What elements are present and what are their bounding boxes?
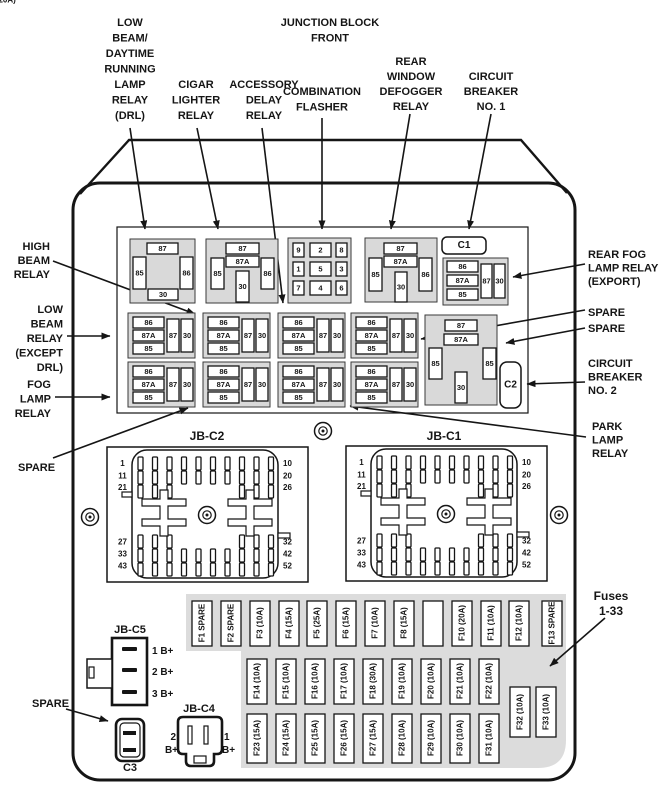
fuse-f2: F2 SPARE xyxy=(221,601,241,646)
svg-text:85: 85 xyxy=(135,269,143,278)
fuse-row-3: F23 (15A) F24 (15A) F25 (15A) F26 (15A) … xyxy=(247,714,499,763)
screw-icon xyxy=(315,423,332,440)
svg-text:LAMP: LAMP xyxy=(592,435,623,447)
svg-text:HIGH: HIGH xyxy=(23,241,51,253)
svg-text:RELAY: RELAY xyxy=(27,333,64,345)
svg-text:(EXPORT): (EXPORT) xyxy=(588,276,641,288)
fuse-f19: F19 (10A) xyxy=(392,659,412,704)
label-low-beam-relay: LOW BEAM RELAY (EXCEPT DRL) xyxy=(15,304,63,374)
fuse-f25: F25 (15A) xyxy=(305,714,325,763)
svg-text:F25 (15A): F25 (15A) xyxy=(311,720,320,756)
svg-text:F7 (10A): F7 (10A) xyxy=(371,607,380,639)
fuse-f32: F32 (10A) xyxy=(510,687,530,737)
screw-icon xyxy=(551,507,568,524)
svg-text:86: 86 xyxy=(182,269,190,278)
svg-text:87: 87 xyxy=(396,244,404,253)
svg-text:F28 (10A): F28 (10A) xyxy=(398,720,407,756)
svg-text:3: 3 xyxy=(339,265,343,274)
svg-text:86: 86 xyxy=(263,269,271,278)
svg-text:BEAM: BEAM xyxy=(18,255,50,267)
svg-text:1: 1 xyxy=(296,265,300,274)
svg-text:LAMP RELAY: LAMP RELAY xyxy=(588,263,659,275)
svg-text:F12 (10A): F12 (10A) xyxy=(515,605,524,641)
fuse-f18: F18 (30A) xyxy=(363,659,383,704)
svg-text:F23 (15A): F23 (15A) xyxy=(253,720,262,756)
svg-text:8: 8 xyxy=(339,246,343,255)
svg-text:F24 (15A): F24 (15A) xyxy=(282,720,291,756)
svg-text:F3 (10A): F3 (10A) xyxy=(256,607,265,639)
label-rear-fog-lamp-relay: REAR FOG LAMP RELAY (EXPORT) xyxy=(588,249,659,288)
fuse-f28: F28 (10A) xyxy=(392,714,412,763)
svg-text:BEAM: BEAM xyxy=(31,319,63,331)
label-jbc1: JB-C1 xyxy=(427,429,462,443)
svg-text:C1: C1 xyxy=(458,240,471,251)
fuse-f17: F17 (10A) xyxy=(334,659,354,704)
svg-text:F13 SPARE: F13 SPARE xyxy=(548,601,557,645)
fuse-f5: F5 (25A) xyxy=(307,601,327,646)
svg-text:FRONT: FRONT xyxy=(311,33,349,45)
mini-relay-high-beam xyxy=(203,313,270,358)
svg-text:C3: C3 xyxy=(123,762,137,774)
svg-text:DEFOGGER: DEFOGGER xyxy=(380,86,443,98)
connector-c2: C2 xyxy=(500,362,521,408)
fuse-f10: F10 (20A) xyxy=(452,601,472,646)
svg-text:87: 87 xyxy=(238,244,246,253)
label-jbc2: JB-C2 xyxy=(190,429,225,443)
label-cigar-lighter-relay: CIGAR LIGHTER RELAY xyxy=(172,79,220,122)
svg-text:9: 9 xyxy=(296,246,300,255)
svg-text:NO. 1: NO. 1 xyxy=(477,101,506,113)
svg-text:C2: C2 xyxy=(504,380,517,391)
svg-text:FLASHER: FLASHER xyxy=(296,102,348,114)
mini-relay-spare-a xyxy=(351,313,418,358)
relay-rear-fog-export: 86 87A 85 87 30 xyxy=(443,258,508,305)
fuse-f30: F30 (10A) xyxy=(450,714,470,763)
label-rear-window-defogger-relay: REAR WINDOW DEFOGGER RELAY xyxy=(380,56,443,113)
fuse-f6: F6 (15A) xyxy=(336,601,356,646)
fuse-f16: F16 (10A) xyxy=(305,659,325,704)
fuse-f26: F26 (15A) xyxy=(334,714,354,763)
combination-flasher-block: 9 2 8 1 5 3 7 4 6 xyxy=(288,238,351,303)
svg-text:COMBINATION: COMBINATION xyxy=(283,86,361,98)
svg-text:30: 30 xyxy=(457,383,465,392)
fuse-f7: F7 (10A) xyxy=(365,601,385,646)
fuse-f20: F20 (10A) xyxy=(421,659,441,704)
label-fuses-1-33: Fuses 1-33 xyxy=(594,589,629,618)
svg-text:7: 7 xyxy=(296,284,300,293)
svg-text:(DRL): (DRL) xyxy=(115,110,145,122)
mini-relay-park-lamp xyxy=(351,362,418,407)
label-park-lamp-relay: PARK LAMP RELAY xyxy=(592,421,629,460)
svg-text:BEAM/: BEAM/ xyxy=(112,33,147,45)
svg-text:BREAKER: BREAKER xyxy=(464,86,518,98)
svg-text:F29 (10A): F29 (10A) xyxy=(427,720,436,756)
fuse-f15: F15 (10A) xyxy=(276,659,296,704)
svg-text:2: 2 xyxy=(318,246,322,255)
connector-jbc1 xyxy=(346,446,547,581)
svg-text:85: 85 xyxy=(431,359,439,368)
svg-text:87A: 87A xyxy=(454,335,468,344)
svg-text:RELAY: RELAY xyxy=(112,95,149,107)
svg-text:DAYTIME: DAYTIME xyxy=(106,48,155,60)
label-drl-relay: LOW BEAM/ DAYTIME RUNNING LAMP RELAY (DR… xyxy=(104,17,155,122)
svg-text:F9 (20A): F9 (20A) xyxy=(0,0,16,5)
svg-text:6: 6 xyxy=(339,284,343,293)
screw-icon xyxy=(82,509,99,526)
fuse-f24: F24 (15A) xyxy=(276,714,296,763)
svg-text:F18 (30A): F18 (30A) xyxy=(369,663,378,699)
svg-text:2: 2 xyxy=(170,732,176,743)
svg-text:REAR FOG: REAR FOG xyxy=(588,249,646,261)
fuse-f23: F23 (15A) xyxy=(247,714,267,763)
mini-relay-fog-lamp xyxy=(128,362,195,407)
label-combination-flasher: COMBINATION FLASHER xyxy=(283,86,361,114)
label-spare-left: SPARE xyxy=(18,462,55,474)
fuse-f3: F3 (10A) xyxy=(250,601,270,646)
svg-text:F33 (10A): F33 (10A) xyxy=(542,694,551,730)
svg-text:LAMP: LAMP xyxy=(114,79,145,91)
svg-text:JUNCTION BLOCK: JUNCTION BLOCK xyxy=(281,17,379,29)
svg-text:CIGAR: CIGAR xyxy=(178,79,214,91)
svg-text:FOG: FOG xyxy=(27,379,51,391)
relay-cigar-lighter: 87 87A 85 86 30 xyxy=(206,239,278,303)
svg-text:F30 (10A): F30 (10A) xyxy=(456,720,465,756)
svg-text:86: 86 xyxy=(458,262,466,271)
svg-text:CIRCUIT: CIRCUIT xyxy=(469,71,514,83)
svg-text:F5 (25A): F5 (25A) xyxy=(313,607,322,639)
svg-text:30: 30 xyxy=(238,282,246,291)
fuse-f1: F1 SPARE xyxy=(192,601,212,646)
svg-text:F21 (10A): F21 (10A) xyxy=(456,663,465,699)
fuse-f31: F31 (10A) xyxy=(479,714,499,763)
svg-text:30: 30 xyxy=(495,277,503,286)
connector-jbc2 xyxy=(107,447,308,582)
svg-text:3 B+: 3 B+ xyxy=(152,689,174,700)
relay-spare-large: 87 87A 85 85 30 xyxy=(425,315,497,405)
label-spare-right-1: SPARE xyxy=(588,307,625,319)
fuse-f29: F29 (10A) xyxy=(421,714,441,763)
label-junction-block-front: JUNCTION BLOCK FRONT xyxy=(281,17,379,45)
svg-text:87: 87 xyxy=(457,321,465,330)
svg-text:F16 (10A): F16 (10A) xyxy=(311,663,320,699)
svg-text:30: 30 xyxy=(397,283,405,292)
svg-text:RELAY: RELAY xyxy=(393,101,430,113)
svg-text:85: 85 xyxy=(371,270,379,279)
svg-text:RELAY: RELAY xyxy=(246,110,283,122)
svg-text:B+: B+ xyxy=(165,745,178,756)
svg-text:85: 85 xyxy=(213,269,221,278)
svg-text:87A: 87A xyxy=(394,257,408,266)
svg-text:1-33: 1-33 xyxy=(599,604,623,618)
mini-relay-low-beam xyxy=(128,313,195,358)
mini-relay-accessory-delay xyxy=(278,313,345,358)
label-high-beam-relay: HIGH BEAM RELAY xyxy=(14,241,51,281)
svg-text:PARK: PARK xyxy=(592,421,622,433)
svg-text:F8 (15A): F8 (15A) xyxy=(400,607,409,639)
connector-c1: C1 xyxy=(442,237,486,254)
svg-text:LIGHTER: LIGHTER xyxy=(172,95,220,107)
svg-text:85: 85 xyxy=(458,290,466,299)
svg-text:F22 (10A): F22 (10A) xyxy=(485,663,494,699)
fuse-f4: F4 (15A) xyxy=(279,601,299,646)
label-spare-right-2: SPARE xyxy=(588,323,625,335)
fuse-f12: F12 (10A) xyxy=(509,601,529,646)
svg-text:JB-C4: JB-C4 xyxy=(183,703,216,715)
label-spare-bottom: SPARE xyxy=(32,698,69,710)
mini-relay-spare-b xyxy=(203,362,270,407)
svg-text:2 B+: 2 B+ xyxy=(152,667,174,678)
fuse-f13: F13 SPARE xyxy=(542,601,562,646)
fuse-f14: F14 (10A) xyxy=(247,659,267,704)
svg-text:LOW: LOW xyxy=(37,304,63,316)
svg-text:BREAKER: BREAKER xyxy=(588,372,642,384)
fuse-f21: F21 (10A) xyxy=(450,659,470,704)
svg-text:F17 (10A): F17 (10A) xyxy=(340,663,349,699)
svg-text:F6 (15A): F6 (15A) xyxy=(342,607,351,639)
svg-text:RELAY: RELAY xyxy=(14,269,51,281)
label-circuit-breaker-2: CIRCUIT BREAKER NO. 2 xyxy=(588,358,642,397)
svg-text:DELAY: DELAY xyxy=(246,95,283,107)
svg-text:87A: 87A xyxy=(456,276,470,285)
svg-text:86: 86 xyxy=(421,270,429,279)
svg-text:DRL): DRL) xyxy=(37,362,64,374)
svg-text:F32 (10A): F32 (10A) xyxy=(516,694,525,730)
svg-text:87: 87 xyxy=(482,277,490,286)
svg-text:B+: B+ xyxy=(222,745,235,756)
svg-text:Fuses: Fuses xyxy=(594,589,629,603)
svg-text:CIRCUIT: CIRCUIT xyxy=(588,358,633,370)
label-circuit-breaker-1: CIRCUIT BREAKER NO. 1 xyxy=(464,71,518,113)
svg-text:5: 5 xyxy=(318,265,322,274)
svg-text:RELAY: RELAY xyxy=(592,448,629,460)
svg-text:RELAY: RELAY xyxy=(178,110,215,122)
mini-relay xyxy=(278,362,345,407)
svg-text:87A: 87A xyxy=(236,257,250,266)
svg-text:1 B+: 1 B+ xyxy=(152,646,174,657)
svg-text:F4 (15A): F4 (15A) xyxy=(285,607,294,639)
svg-text:NO. 2: NO. 2 xyxy=(588,385,617,397)
fuse-box-diagram-page: 86 87A 85 87 30 1 11 21 27 33 43 xyxy=(0,0,659,792)
relay-drl: 87 85 86 30 xyxy=(130,239,195,303)
svg-text:F19 (10A): F19 (10A) xyxy=(398,663,407,699)
relay-rear-defogger: 87 87A 85 86 30 xyxy=(365,238,437,302)
svg-text:F1 SPARE: F1 SPARE xyxy=(198,603,207,642)
svg-text:F26 (15A): F26 (15A) xyxy=(340,720,349,756)
svg-text:F20 (10A): F20 (10A) xyxy=(427,663,436,699)
fuse-f8: F8 (15A) xyxy=(394,601,414,646)
svg-text:F14 (10A): F14 (10A) xyxy=(253,663,262,699)
label-fog-lamp-relay: FOG LAMP RELAY xyxy=(15,379,52,420)
fuse-f22: F22 (10A) xyxy=(479,659,499,704)
junction-block-diagram: 86 87A 85 87 30 1 11 21 27 33 43 xyxy=(0,0,659,792)
svg-text:F27 (15A): F27 (15A) xyxy=(369,720,378,756)
svg-text:F15 (10A): F15 (10A) xyxy=(282,663,291,699)
fuse-row-2: F14 (10A) F15 (10A) F16 (10A) F17 (10A) … xyxy=(247,659,499,704)
svg-text:(EXCEPT: (EXCEPT xyxy=(15,348,63,360)
svg-text:87: 87 xyxy=(158,244,166,253)
svg-text:85: 85 xyxy=(485,359,493,368)
svg-text:REAR: REAR xyxy=(395,56,426,68)
fuse-f11: F11 (10A) xyxy=(481,601,501,646)
svg-text:1: 1 xyxy=(224,732,230,743)
svg-text:30: 30 xyxy=(159,290,167,299)
svg-text:F2 SPARE: F2 SPARE xyxy=(227,603,236,642)
svg-text:F11 (10A): F11 (10A) xyxy=(487,605,496,641)
svg-text:WINDOW: WINDOW xyxy=(387,71,436,83)
svg-text:LAMP: LAMP xyxy=(20,394,51,406)
fuse-f27: F27 (15A) xyxy=(363,714,383,763)
svg-text:LOW: LOW xyxy=(117,17,143,29)
svg-text:RELAY: RELAY xyxy=(15,408,52,420)
svg-text:F10 (20A): F10 (20A) xyxy=(458,605,467,641)
svg-text:JB-C5: JB-C5 xyxy=(114,624,146,636)
svg-text:RUNNING: RUNNING xyxy=(104,64,155,76)
svg-text:F31 (10A): F31 (10A) xyxy=(485,720,494,756)
fuse-f33: F33 (10A) xyxy=(536,687,556,737)
